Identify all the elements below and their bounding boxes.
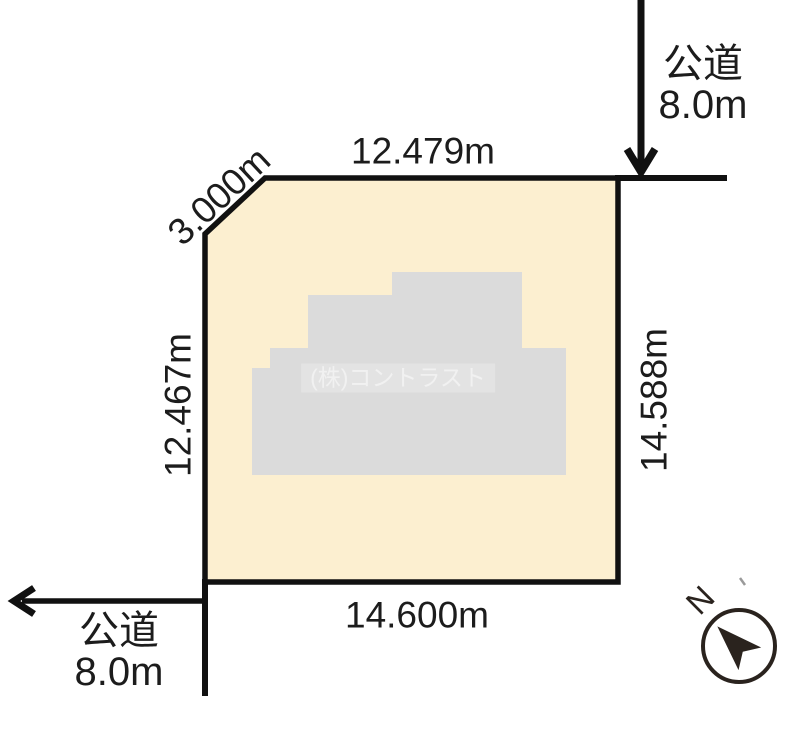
bottom-road-width: 8.0m [75,652,164,693]
land-plot-diagram: 12.479m 3.000m 12.467m 14.588m 14.600m 公… [0,0,795,744]
bottom-road-label: 公道 8.0m [75,611,164,693]
bottom-road-name: 公道 [75,611,164,652]
compass-icon [703,610,775,682]
top-road-width: 8.0m [659,85,748,126]
company-watermark: (株)コントラスト [301,364,495,393]
dimension-label-left: 12.467m [160,333,197,477]
tick-mark [740,578,745,585]
dimension-label-bottom: 14.600m [345,597,489,634]
dimension-label-right: 14.588m [636,328,673,472]
top-road-label: 公道 8.0m [659,44,748,126]
top-road-name: 公道 [659,44,748,85]
dimension-label-top: 12.479m [351,133,495,170]
top-road-arrow-down-icon [627,0,655,172]
